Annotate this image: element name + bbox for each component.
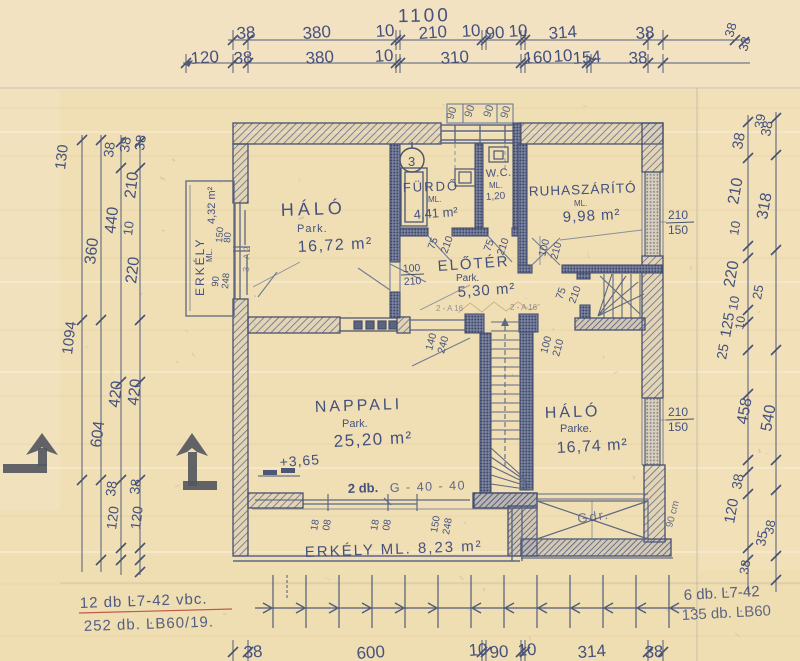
svg-text:420: 420 — [125, 378, 145, 407]
svg-text:100: 100 — [403, 262, 421, 275]
svg-text:120: 120 — [103, 505, 122, 530]
svg-text:3 - A 2: 3 - A 2 — [241, 246, 252, 272]
svg-text:440: 440 — [102, 206, 122, 235]
svg-text:3: 3 — [408, 154, 415, 169]
svg-text:25: 25 — [713, 342, 731, 360]
svg-text:360: 360 — [82, 237, 102, 266]
svg-text:1,20: 1,20 — [485, 191, 506, 203]
svg-text:38: 38 — [102, 480, 120, 498]
svg-text:38: 38 — [729, 131, 749, 150]
svg-text:HÁLÓ: HÁLÓ — [280, 197, 346, 220]
svg-text:Park.: Park. — [297, 223, 328, 235]
svg-text:10: 10 — [375, 21, 395, 41]
svg-text:38: 38 — [635, 23, 655, 43]
svg-text:10: 10 — [732, 315, 748, 331]
svg-text:38: 38 — [100, 141, 118, 159]
svg-text:G - 40 - 40: G - 40 - 40 — [390, 478, 467, 495]
svg-text:2 - A 16: 2 - A 16 — [510, 303, 538, 312]
svg-text:ML.: ML. — [428, 195, 441, 204]
svg-text:80: 80 — [222, 232, 234, 243]
svg-text:38: 38 — [761, 519, 778, 536]
svg-text:39: 39 — [751, 113, 768, 130]
svg-text:210: 210 — [404, 275, 422, 288]
svg-text:38: 38 — [728, 472, 746, 490]
svg-text:FÜRDŐ: FÜRDŐ — [403, 178, 460, 195]
svg-text:10: 10 — [553, 46, 573, 66]
svg-text:10: 10 — [726, 220, 743, 237]
svg-text:10: 10 — [461, 21, 481, 41]
svg-text:38: 38 — [236, 23, 256, 43]
svg-text:2 db.: 2 db. — [348, 480, 379, 496]
svg-text:2 - A 16: 2 - A 16 — [436, 304, 464, 313]
svg-text:+3,65: +3,65 — [279, 451, 320, 470]
svg-text:Park.: Park. — [342, 418, 368, 430]
svg-text:314: 314 — [577, 641, 607, 661]
svg-text:314: 314 — [548, 22, 578, 43]
svg-text:10: 10 — [468, 640, 488, 660]
svg-text:380: 380 — [305, 47, 335, 68]
svg-text:10: 10 — [517, 640, 537, 660]
svg-text:38: 38 — [233, 48, 253, 68]
svg-text:380: 380 — [302, 22, 332, 43]
svg-text:10: 10 — [120, 220, 137, 236]
svg-text:220: 220 — [123, 256, 143, 285]
svg-text:38: 38 — [126, 478, 144, 496]
svg-text:4,32 m²: 4,32 m² — [206, 186, 218, 224]
svg-text:ML.: ML. — [574, 199, 587, 208]
svg-text:604: 604 — [88, 420, 108, 449]
svg-text:10: 10 — [725, 295, 742, 312]
svg-text:25: 25 — [749, 284, 766, 301]
svg-text:90: 90 — [489, 642, 509, 661]
svg-text:210: 210 — [668, 208, 688, 222]
svg-text:38: 38 — [644, 642, 664, 661]
svg-text:38: 38 — [628, 48, 648, 68]
svg-text:NAPPALI: NAPPALI — [315, 396, 403, 416]
svg-text:210: 210 — [122, 171, 142, 200]
svg-text:248: 248 — [220, 273, 232, 290]
svg-text:ERKÉLY: ERKÉLY — [192, 238, 207, 296]
svg-text:38: 38 — [131, 134, 149, 152]
svg-text:150: 150 — [668, 223, 688, 237]
svg-text:HÁLÓ: HÁLÓ — [544, 401, 600, 422]
svg-text:38: 38 — [243, 642, 263, 661]
svg-text:120: 120 — [190, 47, 220, 68]
svg-text:9,98 m²: 9,98 m² — [562, 206, 621, 226]
svg-text:210: 210 — [418, 22, 448, 43]
svg-text:210: 210 — [668, 405, 688, 419]
svg-text:600: 600 — [356, 642, 386, 661]
svg-text:4,41 m²: 4,41 m² — [413, 204, 459, 222]
svg-text:10: 10 — [374, 46, 394, 66]
svg-text:150: 150 — [668, 420, 688, 434]
svg-text:ML.: ML. — [489, 181, 502, 190]
svg-text:420: 420 — [106, 380, 126, 409]
svg-text:ML.: ML. — [205, 249, 214, 262]
svg-text:130: 130 — [52, 144, 72, 171]
svg-text:Parke.: Parke. — [560, 423, 592, 435]
svg-text:310: 310 — [440, 47, 470, 68]
svg-text:90: 90 — [485, 23, 505, 43]
svg-text:38: 38 — [736, 559, 753, 576]
svg-text:160: 160 — [523, 47, 553, 68]
svg-text:120: 120 — [127, 505, 146, 530]
svg-text:10: 10 — [508, 21, 528, 41]
svg-text:154: 154 — [572, 47, 602, 68]
svg-text:W.C.: W.C. — [486, 167, 512, 180]
